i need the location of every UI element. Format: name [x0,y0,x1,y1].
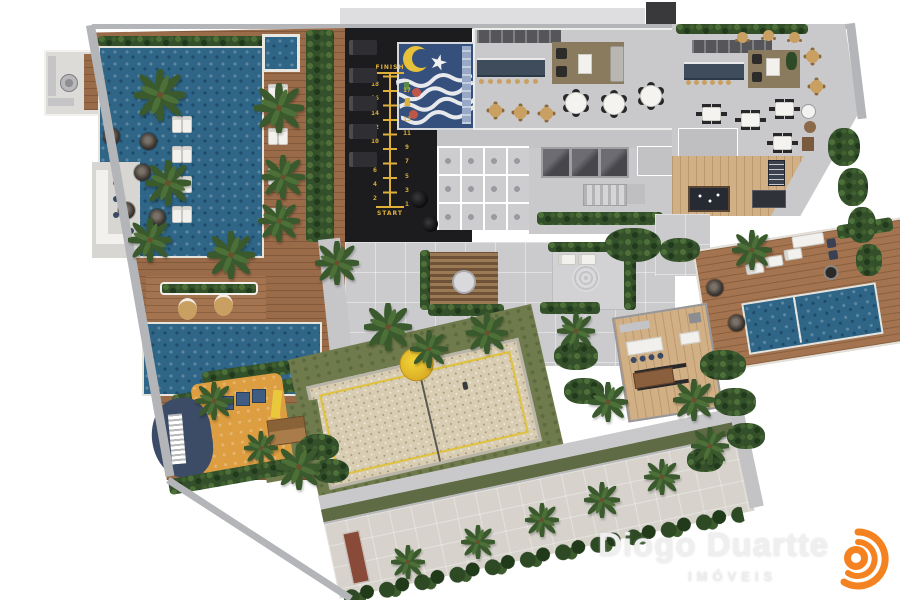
sun-lounger [182,206,192,223]
palm-tree-icon [732,230,772,270]
palm-tree-icon [410,330,448,368]
dining-table-round [640,85,662,107]
pool-top-hedge [98,36,268,46]
bar-stool [515,79,520,84]
running-track-line [389,74,391,206]
parasol-icon [140,133,157,150]
stair-landing [627,184,645,204]
palm-tree-icon [276,444,322,490]
dining-table-square [773,136,792,150]
shrub-cluster [700,350,746,380]
track-number: 4 [373,180,377,188]
spa-hot-tub [262,34,300,72]
locker-rooms [437,146,529,230]
round-daybed [178,298,197,320]
shrub-cluster [838,168,868,206]
dining-table-square [702,107,721,121]
treadmill [349,40,377,55]
terrace-table [737,32,748,43]
bar-stool [506,79,511,84]
palm-tree-icon [466,312,508,354]
palm-tree-icon [588,382,628,422]
service-counter [48,56,56,96]
toy-shelf [462,46,471,124]
deco-sign-brown [804,121,816,133]
watermark-brand: Diogo Duartte [598,526,829,564]
track-number: 7 [405,157,409,165]
shrub-cluster [828,128,860,166]
shrub-cluster [605,228,661,262]
palm-tree-icon [254,83,304,133]
bar-stool [524,79,529,84]
card-table [752,190,786,208]
track-number: 3 [405,186,409,194]
palm-tree-icon [691,427,729,465]
shrub-cluster [856,244,882,276]
track-number: 17 [403,86,411,94]
pergola-table [452,270,476,294]
zen-gravel-rings [572,264,600,292]
shrub-cluster [848,207,876,243]
palm-tree-icon [461,525,495,559]
palm-tree-icon [673,379,715,421]
armchair [752,54,762,64]
deco-sign-round [801,104,816,119]
palm-tree-icon [364,303,412,351]
bar-stool [479,79,484,84]
palm-tree-icon [258,200,300,242]
kitchen-counter [477,30,561,43]
palm-tree-icon [195,382,233,420]
bar-counter [477,58,545,77]
terrace-table [763,30,774,41]
coffee-table [578,54,592,74]
deck-chair [826,238,836,248]
side-table [679,330,701,345]
weight-plate [422,216,438,232]
dining-table-round [565,92,587,114]
deck-chair [828,250,838,260]
round-table [60,74,78,92]
deck-right-hedge [306,30,334,242]
bar-stool [702,80,707,85]
fridge [688,312,701,324]
dining-table-round [603,93,625,115]
palm-tree-icon [145,160,191,206]
track-finish-bar [376,72,404,74]
island-stool [657,352,664,359]
island-stool [648,354,655,361]
pergola-hedge-left [420,250,430,310]
palm-tree-icon [391,545,425,579]
shrub-cluster [714,388,756,416]
bar-stool [686,80,691,85]
storage-room [637,146,675,176]
track-number: 15 [403,100,411,108]
sun-lounger [172,206,182,223]
island-stool [639,355,646,362]
play-panel [252,389,266,403]
dining-table-square [775,102,794,116]
palm-tree-icon [557,312,595,350]
shrub-cluster [660,238,700,262]
cafe-table [489,104,502,117]
pool-bar-counter [96,170,108,238]
palm-tree-icon [134,69,186,121]
track-number: 2 [373,194,377,202]
cafe-table [806,50,819,63]
palm-tree-icon [644,459,680,495]
track-numbers-right: 1715131197531 [400,86,414,208]
treadmill [349,152,377,167]
elevator-cab [599,147,629,178]
sofa [610,46,624,82]
cafe-table [540,107,553,120]
armchair [752,72,762,82]
bar-stool [497,79,502,84]
palm-tree-icon [584,482,620,518]
star-icon [428,52,449,73]
palm-tree-icon [525,503,559,537]
bar-stool [694,80,699,85]
billiards-table [688,186,730,212]
watermark-logo-icon [834,520,892,592]
bar-stool [718,80,723,85]
treadmill [349,68,377,83]
wc-service-room [678,128,738,158]
palm-tree-icon [315,241,359,285]
services-hedge [537,212,663,225]
cafe-table [810,80,823,93]
track-start-label: START [367,210,413,217]
crescent-moon-cut [412,49,431,68]
stairs [583,184,627,206]
dining-table-long [633,367,675,389]
track-number: 5 [405,172,409,180]
cabinet [619,320,650,333]
watermark-subtitle: IMÓVEIS [688,569,777,584]
bar-stool [533,79,538,84]
track-number: 1 [405,200,409,208]
island-stool [630,357,637,364]
elevator-cab [541,147,571,178]
bar-stool [488,79,493,84]
armchair [556,66,567,77]
service-counter-2 [48,98,74,106]
palm-tree-icon [128,218,172,262]
resort-floorplan-render: FINISH START 18161412108642 171513119753… [0,0,900,600]
play-panel [236,392,250,406]
armchair [556,48,567,59]
palm-tree-icon [261,155,305,199]
potted-plant [786,52,797,70]
zen-lounger [558,254,576,265]
zen-lounger [578,254,596,265]
palm-tree-icon [207,231,255,279]
bar-counter-right [684,62,744,80]
foosball-table [768,160,785,186]
coffee-table [766,58,780,76]
deco-crate [802,137,814,151]
elevator-cab [570,147,600,178]
deck-planter [160,282,258,295]
round-daybed [214,294,233,316]
weight-plate [410,190,428,208]
bar-stool [710,80,715,85]
dining-table-square [741,113,760,127]
terrace-table [789,32,800,43]
cafe-table [514,106,527,119]
palm-tree-icon [244,431,278,465]
treadmill [349,124,377,139]
shrub-cluster [727,423,765,449]
treadmill [349,96,377,111]
track-number: 13 [403,115,411,123]
track-number: 11 [403,129,411,137]
bar-stool [726,80,731,85]
track-number: 9 [405,143,409,151]
